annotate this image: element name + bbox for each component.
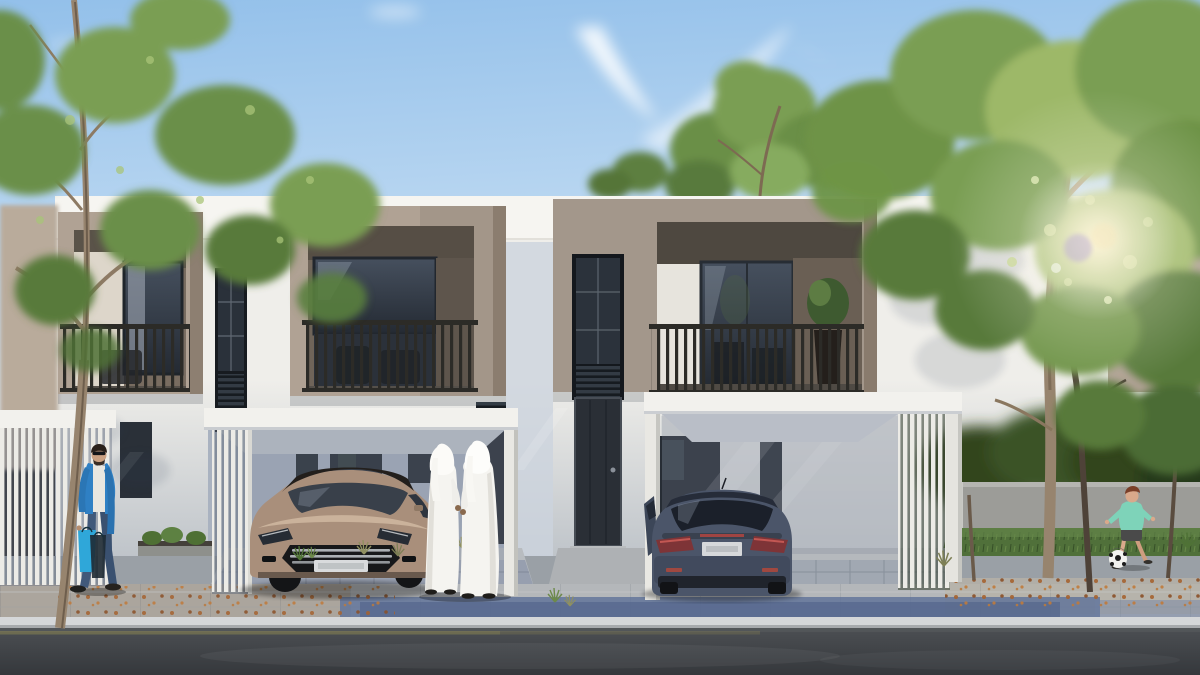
side-mirror <box>414 505 423 511</box>
fallen-leaves-right <box>945 576 1200 610</box>
sunglasses <box>93 452 106 456</box>
hand <box>76 525 81 530</box>
lens-flare-dot <box>1051 263 1061 273</box>
hand <box>460 509 466 515</box>
door-handle <box>611 468 616 473</box>
hand <box>1151 517 1155 521</box>
unit1-stair-window <box>215 268 247 432</box>
street-ground <box>0 548 1200 675</box>
hand <box>1105 520 1109 524</box>
rendering-canvas <box>0 0 1200 675</box>
shoe <box>105 584 121 591</box>
shopping-bag <box>90 535 106 578</box>
planter-wall <box>138 527 212 560</box>
balcony-railing <box>649 324 877 394</box>
balcony-railing <box>302 320 478 392</box>
townhouse-rendering <box>0 0 1200 675</box>
carport-beam <box>204 408 518 430</box>
car-wheel <box>768 582 786 594</box>
car-wheel <box>660 582 678 594</box>
lens-flare-circle <box>1091 223 1117 249</box>
unit3-stair-window <box>572 254 624 400</box>
unit3-entrance-door <box>570 398 626 554</box>
lens-flare-circle <box>1064 234 1092 262</box>
shoe <box>1144 560 1153 564</box>
carport-beam <box>644 392 962 414</box>
shoe <box>444 589 456 594</box>
shoe <box>483 593 496 599</box>
hand <box>455 505 461 511</box>
shoe <box>425 589 437 594</box>
road-edge-line <box>0 631 500 635</box>
shoe <box>462 593 475 599</box>
shoe <box>70 586 86 593</box>
carport-slat-screen <box>212 430 252 594</box>
shirt <box>1119 501 1144 530</box>
